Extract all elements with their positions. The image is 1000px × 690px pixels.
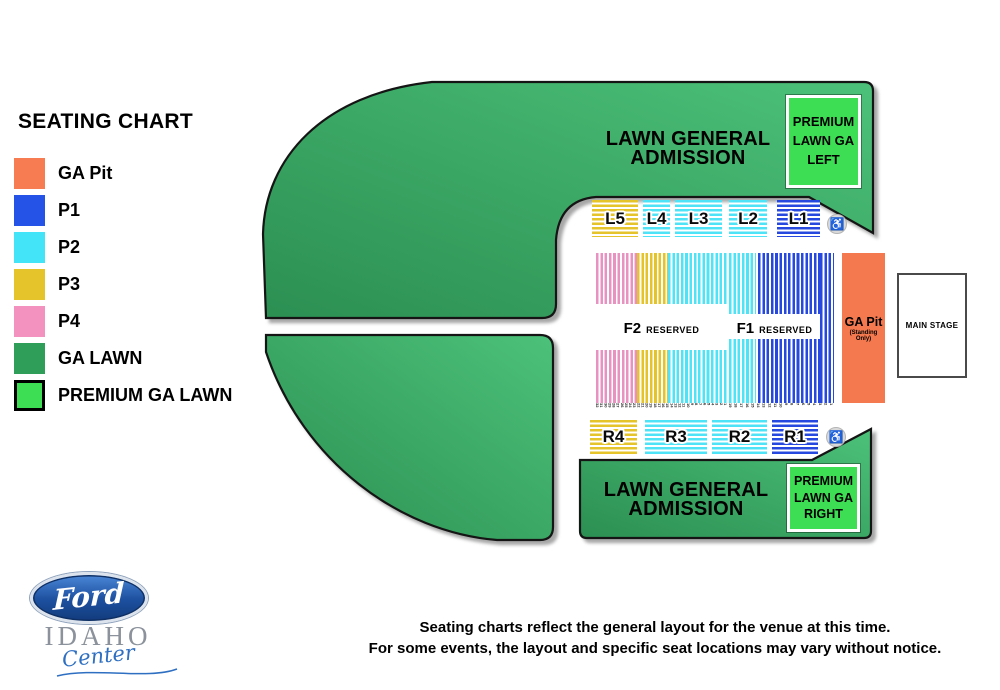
section-f2-columns-0[interactable]	[596, 253, 637, 304]
premium-lawn-ga-left[interactable]: PREMIUM LAWN GA LEFT	[786, 95, 861, 188]
section-f1-columns-1[interactable]	[758, 339, 820, 403]
section-f1-columns-1[interactable]	[758, 253, 820, 314]
legend-swatch-premium-ga-lawn	[14, 380, 45, 411]
section-l2-label: L2	[738, 209, 758, 229]
main-stage-label: MAIN STAGE	[906, 321, 959, 330]
lawn-ga-label-bottom: LAWN GENERAL ADMISSION	[586, 481, 786, 519]
section-r1-label: R1	[784, 427, 806, 447]
section-l4-label: L4	[647, 209, 667, 229]
section-l1-label: L1	[789, 209, 809, 229]
section-r2-label: R2	[729, 427, 751, 447]
section-r3-label: R3	[665, 427, 687, 447]
disclaimer-line1: Seating charts reflect the general layou…	[320, 617, 990, 638]
legend-item-p1: P1	[14, 195, 232, 226]
section-r4[interactable]: R4	[590, 420, 637, 454]
section-l3-label: L3	[689, 209, 709, 229]
legend-item-p3: P3	[14, 269, 232, 300]
legend-label-premium-ga-lawn: PREMIUM GA LAWN	[58, 385, 232, 406]
section-l5-label: L5	[605, 209, 625, 229]
section-f2-columns-2[interactable]	[668, 253, 727, 304]
section-l1[interactable]: L1	[777, 200, 820, 237]
legend-swatch-p3	[14, 269, 45, 300]
section-f1-label: F1RESERVED	[729, 320, 820, 337]
section-r4-label: R4	[603, 427, 625, 447]
legend-swatch-p4	[14, 306, 45, 337]
legend-swatch-ga-pit	[14, 158, 45, 189]
section-l3[interactable]: L3	[675, 200, 722, 237]
ford-logo: Ford	[30, 572, 148, 624]
legend: GA PitP1P2P3P4GA LAWNPREMIUM GA LAWN	[14, 158, 232, 411]
section-f2-columns-1[interactable]	[637, 350, 668, 403]
f2-seat-column-numbers: 3231302928272625242322212019181716151413…	[596, 403, 727, 413]
section-ga-pit[interactable]: GA Pit (Standing Only)	[842, 253, 885, 403]
section-f2-columns-1[interactable]	[637, 253, 668, 304]
section-f1-columns-right[interactable]	[820, 253, 834, 403]
seating-chart-page: SEATING CHART GA PitP1P2P3P4GA LAWNPREMI…	[0, 0, 1000, 690]
script-flourish	[55, 666, 180, 680]
disclaimer: Seating charts reflect the general layou…	[320, 617, 990, 659]
legend-swatch-p2	[14, 232, 45, 263]
section-r1[interactable]: R1	[772, 420, 818, 454]
page-title: SEATING CHART	[18, 110, 193, 134]
section-f2-columns-0[interactable]	[596, 350, 637, 403]
main-stage: MAIN STAGE	[897, 273, 967, 378]
legend-item-ga-pit: GA Pit	[14, 158, 232, 189]
section-r3[interactable]: R3	[645, 420, 707, 454]
premium-left-label: PREMIUM LAWN GA LEFT	[791, 113, 856, 170]
ga-pit-label: GA Pit	[845, 315, 883, 329]
disclaimer-line2: For some events, the layout and specific…	[320, 638, 990, 659]
section-f2-columns-2[interactable]	[668, 350, 727, 403]
section-l4[interactable]: L4	[643, 200, 670, 237]
section-r2[interactable]: R2	[712, 420, 767, 454]
legend-label-ga-lawn: GA LAWN	[58, 348, 142, 369]
legend-item-ga-lawn: GA LAWN	[14, 343, 232, 374]
lawn-lower-arm[interactable]	[266, 335, 553, 540]
section-f2-label: F2RESERVED	[596, 320, 727, 337]
legend-label-ga-pit: GA Pit	[58, 163, 112, 184]
section-l5[interactable]: L5	[592, 200, 638, 237]
premium-lawn-ga-right[interactable]: PREMIUM LAWN GA RIGHT	[787, 464, 860, 532]
ga-pit-sublabel: (Standing Only)	[842, 330, 885, 342]
ford-logo-text: Ford	[53, 576, 125, 617]
legend-swatch-p1	[14, 195, 45, 226]
wheelchair-icon: ♿	[827, 214, 847, 234]
legend-item-premium-ga-lawn: PREMIUM GA LAWN	[14, 380, 232, 411]
section-f1-columns-0[interactable]	[729, 339, 756, 403]
legend-label-p1: P1	[58, 200, 80, 221]
legend-swatch-ga-lawn	[14, 343, 45, 374]
f1-seat-column-numbers: 19181716151413121110987654321	[729, 403, 833, 413]
legend-item-p2: P2	[14, 232, 232, 263]
legend-label-p4: P4	[58, 311, 80, 332]
wheelchair-icon: ♿	[826, 427, 846, 447]
premium-right-label: PREMIUM LAWN GA RIGHT	[792, 473, 855, 524]
section-f1-columns-0[interactable]	[729, 253, 756, 314]
legend-label-p3: P3	[58, 274, 80, 295]
lawn-ga-label-top: LAWN GENERAL ADMISSION	[588, 130, 788, 168]
legend-label-p2: P2	[58, 237, 80, 258]
legend-item-p4: P4	[14, 306, 232, 337]
section-l2[interactable]: L2	[729, 200, 767, 237]
